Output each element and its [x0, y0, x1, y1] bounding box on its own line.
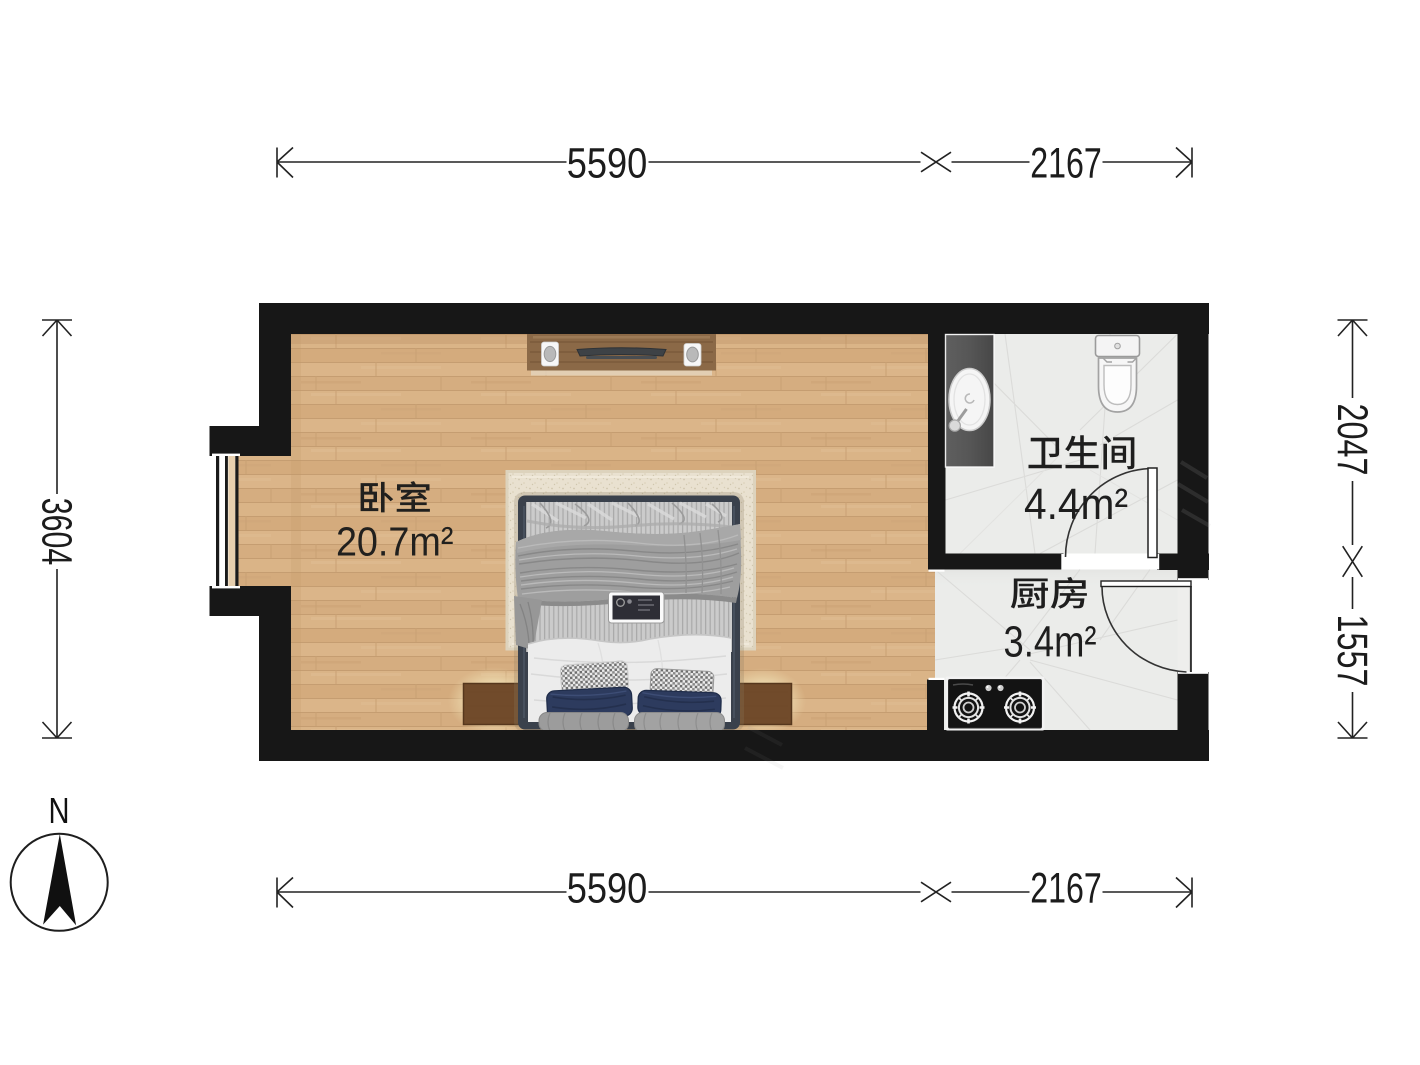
svg-text:2047: 2047	[1328, 404, 1376, 476]
svg-text:3.4m²: 3.4m²	[1004, 617, 1097, 666]
svg-text:20.7m²: 20.7m²	[336, 519, 454, 565]
svg-text:2167: 2167	[1030, 864, 1102, 912]
svg-text:3604: 3604	[33, 498, 81, 565]
svg-text:5590: 5590	[567, 864, 648, 912]
svg-text:2167: 2167	[1030, 140, 1102, 188]
svg-text:1557: 1557	[1328, 615, 1376, 687]
svg-text:5590: 5590	[567, 140, 648, 188]
svg-text:4.4m²: 4.4m²	[1024, 480, 1128, 529]
svg-text:N: N	[49, 790, 70, 831]
